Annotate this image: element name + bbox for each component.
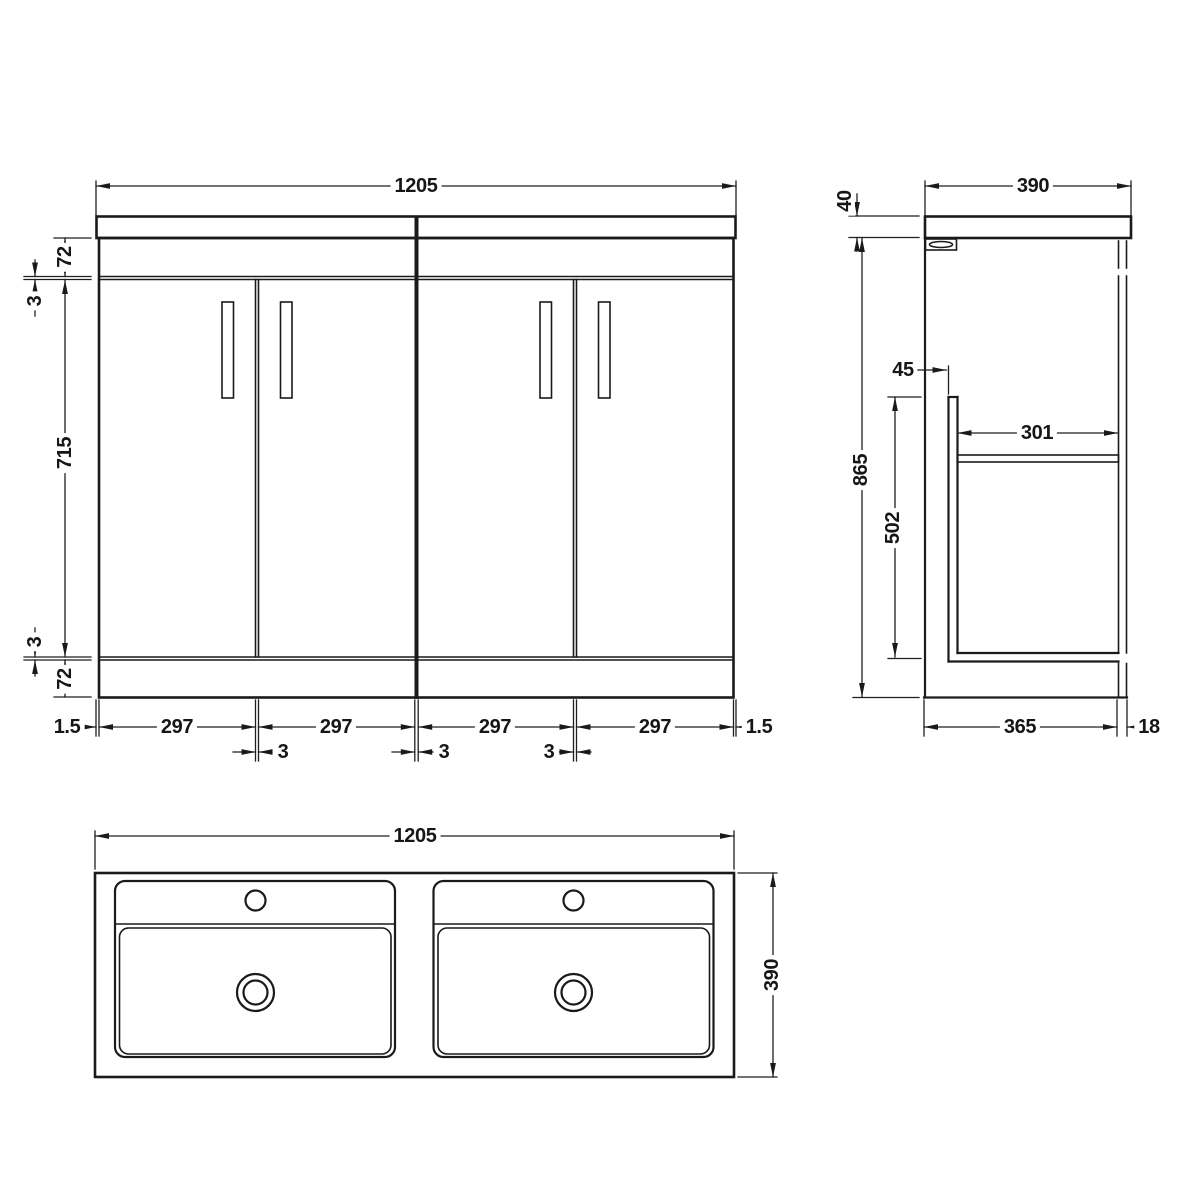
dim-front-top-gap: 3: [25, 292, 45, 311]
dim-side-internal-depth: 301: [1017, 423, 1057, 443]
dim-plan-depth: 390: [762, 955, 782, 995]
dim-front-plinth: 72: [55, 664, 75, 693]
dim-front-bottom-gap: 3: [25, 633, 45, 652]
front-door-divider-left: [256, 280, 259, 658]
drain-right-inner-icon: [562, 981, 586, 1005]
dim-side-back-panel: 18: [1134, 717, 1163, 737]
technical-drawing-canvas: 1205 72 3 715 3 72 1.5 297 297 297 297 1…: [0, 0, 1200, 1200]
dim-plan-width: 1205: [390, 826, 441, 846]
side-handle-slot: [930, 242, 953, 248]
dim-front-door-width-3: 297: [475, 717, 515, 737]
tap-hole-right-icon: [564, 891, 584, 911]
door-handle-1: [222, 302, 234, 398]
dim-front-door-gap-3: 3: [540, 742, 559, 762]
door-handle-2: [281, 302, 293, 398]
dim-side-base-depth: 365: [1000, 717, 1040, 737]
drain-left-inner-icon: [244, 981, 268, 1005]
dim-side-carcase-height: 865: [851, 450, 871, 490]
dim-front-door-width-1: 297: [157, 717, 197, 737]
dim-front-door-height: 715: [55, 433, 75, 473]
front-door-divider-right: [574, 280, 577, 658]
basin-left-outer: [115, 881, 395, 1057]
side-worktop: [925, 217, 1131, 239]
plan-view-drawing: [95, 873, 734, 1077]
dim-side-depth: 390: [1013, 176, 1053, 196]
dim-side-internal-height: 502: [883, 508, 903, 548]
basin-right-bowl: [438, 928, 710, 1054]
plan-view-dimensions: [95, 831, 777, 1077]
basin-left-bowl: [120, 928, 392, 1054]
dim-front-door-gap-2: 3: [435, 742, 454, 762]
dim-front-door-width-2: 297: [316, 717, 356, 737]
dim-front-door-gap-1: 3: [274, 742, 293, 762]
dim-front-overhang-left: 1.5: [50, 717, 85, 737]
dim-front-top-rail: 72: [55, 242, 75, 271]
dim-front-overall-width: 1205: [391, 176, 442, 196]
plan-basin-left: [115, 881, 395, 1057]
door-handle-3: [540, 302, 552, 398]
basin-right-outer: [434, 881, 714, 1057]
tap-hole-left-icon: [246, 891, 266, 911]
plan-worktop: [95, 873, 734, 1077]
front-view-dimensions: [24, 181, 750, 761]
plan-basin-right: [434, 881, 714, 1057]
dim-side-door-setback: 45: [888, 360, 917, 380]
dim-front-overhang-right: 1.5: [742, 717, 777, 737]
front-view-drawing: [97, 217, 736, 698]
door-handle-4: [599, 302, 611, 398]
side-back-panel: [1119, 241, 1127, 698]
side-shelf: [958, 455, 1119, 462]
side-view-drawing: [924, 217, 1131, 698]
dim-side-worktop-thickness: 40: [835, 186, 855, 215]
dim-front-door-width-4: 297: [635, 717, 675, 737]
